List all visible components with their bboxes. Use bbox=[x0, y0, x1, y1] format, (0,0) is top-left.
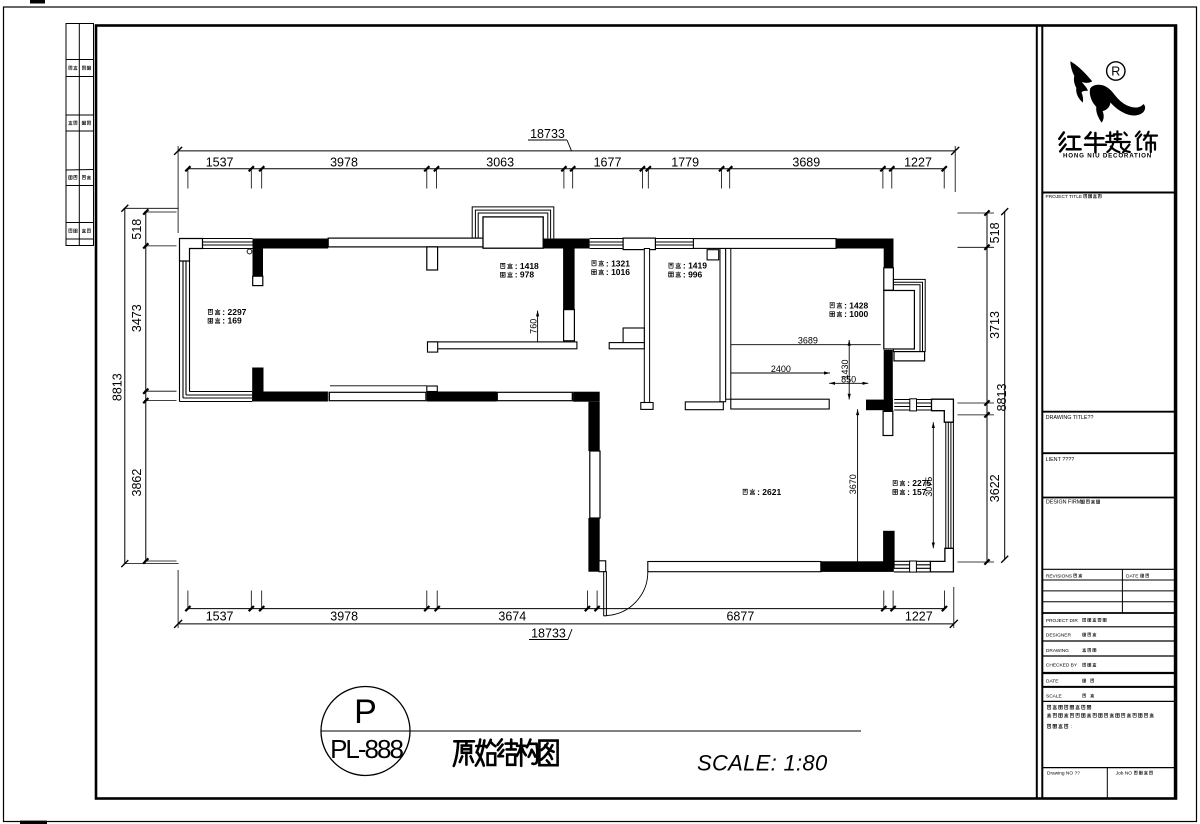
svg-text:2400: 2400 bbox=[771, 364, 791, 374]
svg-text:: 978: : 978 bbox=[515, 270, 535, 280]
svg-text:3978: 3978 bbox=[330, 610, 358, 624]
svg-text:DATE: DATE bbox=[1046, 679, 1058, 685]
svg-text:3670: 3670 bbox=[848, 474, 858, 494]
svg-text:DRAWING: DRAWING bbox=[1046, 648, 1069, 654]
svg-text:3622: 3622 bbox=[988, 474, 1002, 502]
svg-text:P: P bbox=[354, 693, 377, 731]
svg-text:: 2621: : 2621 bbox=[757, 487, 781, 497]
svg-text::: : bbox=[1071, 725, 1072, 730]
svg-text:1227: 1227 bbox=[904, 156, 932, 170]
svg-text:CHECKED BY: CHECKED BY bbox=[1046, 663, 1078, 669]
svg-text:8813: 8813 bbox=[995, 384, 1009, 412]
svg-text:3473: 3473 bbox=[130, 304, 144, 332]
svg-text:: 169: : 169 bbox=[222, 316, 242, 326]
svg-text:3978: 3978 bbox=[330, 156, 358, 170]
svg-text:: 1000: : 1000 bbox=[844, 309, 868, 319]
svg-text:518: 518 bbox=[988, 222, 1002, 243]
svg-text:: 996: : 996 bbox=[683, 269, 703, 279]
svg-text:1779: 1779 bbox=[671, 156, 699, 170]
svg-text:18733: 18733 bbox=[530, 127, 565, 141]
svg-text:PROJECT DIR: PROJECT DIR bbox=[1046, 618, 1078, 624]
svg-text:DATE: DATE bbox=[1126, 573, 1138, 579]
svg-text:PROJECT TITLE: PROJECT TITLE bbox=[1046, 194, 1083, 200]
svg-text:PL-888: PL-888 bbox=[330, 734, 403, 764]
svg-text:: 1016: : 1016 bbox=[606, 267, 630, 277]
svg-text:LIENT ????: LIENT ???? bbox=[1046, 457, 1075, 463]
svg-text:6877: 6877 bbox=[726, 610, 754, 624]
svg-text:SCALE: 1:80: SCALE: 1:80 bbox=[697, 751, 828, 776]
svg-text:DESIGN FIRM: DESIGN FIRM bbox=[1046, 500, 1082, 506]
svg-text:Drawing NO ??: Drawing NO ?? bbox=[1047, 771, 1080, 777]
svg-text:HONG NIU DECORATION: HONG NIU DECORATION bbox=[1063, 153, 1152, 160]
svg-text:3674: 3674 bbox=[498, 610, 526, 624]
svg-text:DRAWING TITLE??: DRAWING TITLE?? bbox=[1046, 415, 1094, 421]
svg-text:DESIGNER: DESIGNER bbox=[1046, 633, 1072, 639]
svg-text:REVISIONS: REVISIONS bbox=[1046, 573, 1072, 579]
svg-text:1677: 1677 bbox=[594, 156, 622, 170]
svg-text:18733: 18733 bbox=[531, 627, 566, 641]
svg-text:3713: 3713 bbox=[988, 311, 1002, 339]
svg-text:R: R bbox=[1111, 65, 1120, 79]
svg-text:1227: 1227 bbox=[905, 610, 933, 624]
svg-text:3063: 3063 bbox=[486, 156, 514, 170]
svg-text:518: 518 bbox=[130, 219, 144, 240]
svg-text:1537: 1537 bbox=[206, 156, 234, 170]
svg-text:3862: 3862 bbox=[130, 469, 144, 497]
svg-text:1537: 1537 bbox=[206, 610, 234, 624]
svg-text:3689: 3689 bbox=[798, 336, 818, 346]
svg-text:3689: 3689 bbox=[792, 156, 820, 170]
svg-text:: 157: : 157 bbox=[907, 487, 927, 497]
svg-text:760: 760 bbox=[529, 319, 539, 334]
svg-text:SCALE: SCALE bbox=[1046, 694, 1062, 700]
svg-text:Job NO: Job NO bbox=[1116, 771, 1133, 777]
svg-text:8813: 8813 bbox=[111, 373, 125, 401]
svg-text:850: 850 bbox=[841, 374, 856, 384]
